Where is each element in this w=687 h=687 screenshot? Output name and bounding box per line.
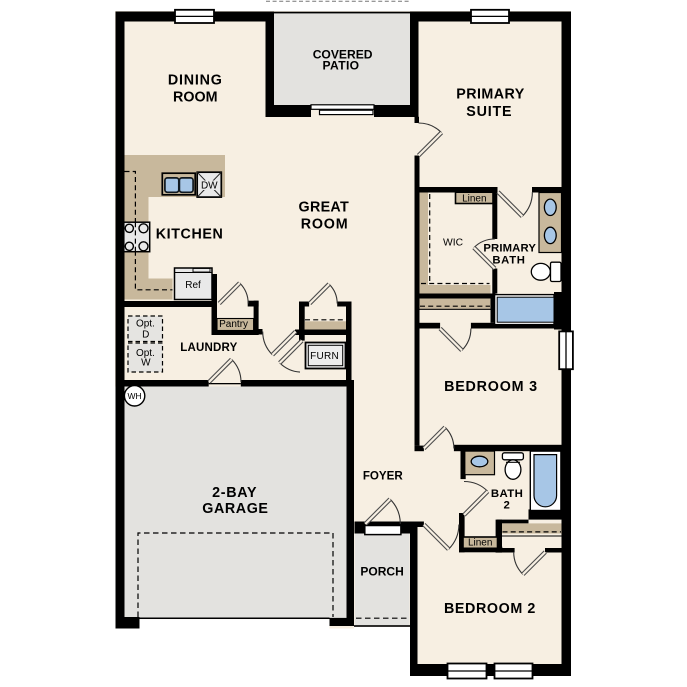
svg-text:D: D: [142, 329, 149, 340]
svg-text:WH: WH: [128, 391, 142, 401]
svg-text:Linen: Linen: [468, 538, 492, 549]
svg-text:SUITE: SUITE: [466, 104, 512, 120]
svg-text:PRIMARY: PRIMARY: [456, 87, 525, 103]
svg-text:FOYER: FOYER: [363, 469, 404, 482]
svg-text:WIC: WIC: [443, 238, 464, 249]
svg-text:GARAGE: GARAGE: [202, 501, 268, 517]
svg-text:LAUNDRY: LAUNDRY: [180, 342, 237, 354]
svg-text:FURN: FURN: [310, 351, 339, 362]
svg-text:ROOM: ROOM: [173, 89, 217, 105]
svg-text:GREAT: GREAT: [299, 200, 349, 216]
svg-text:PORCH: PORCH: [360, 565, 403, 579]
svg-text:ROOM: ROOM: [301, 217, 349, 233]
svg-text:DW: DW: [201, 181, 218, 192]
svg-text:KITCHEN: KITCHEN: [156, 227, 224, 243]
svg-text:BEDROOM 2: BEDROOM 2: [444, 601, 536, 617]
svg-text:PATIO: PATIO: [323, 58, 360, 72]
svg-text:2-BAY: 2-BAY: [212, 485, 257, 501]
svg-text:BATH: BATH: [491, 488, 523, 500]
svg-text:W: W: [141, 358, 151, 369]
svg-text:BATH: BATH: [492, 254, 525, 266]
svg-text:Pantry: Pantry: [219, 319, 248, 330]
svg-text:PRIMARY: PRIMARY: [483, 243, 536, 255]
svg-text:Ref: Ref: [185, 280, 201, 291]
svg-text:BEDROOM 3: BEDROOM 3: [444, 379, 538, 395]
svg-text:Opt.: Opt.: [136, 319, 155, 330]
svg-text:DINING: DINING: [168, 72, 223, 88]
svg-text:2: 2: [504, 500, 510, 512]
svg-text:Linen: Linen: [462, 194, 486, 205]
